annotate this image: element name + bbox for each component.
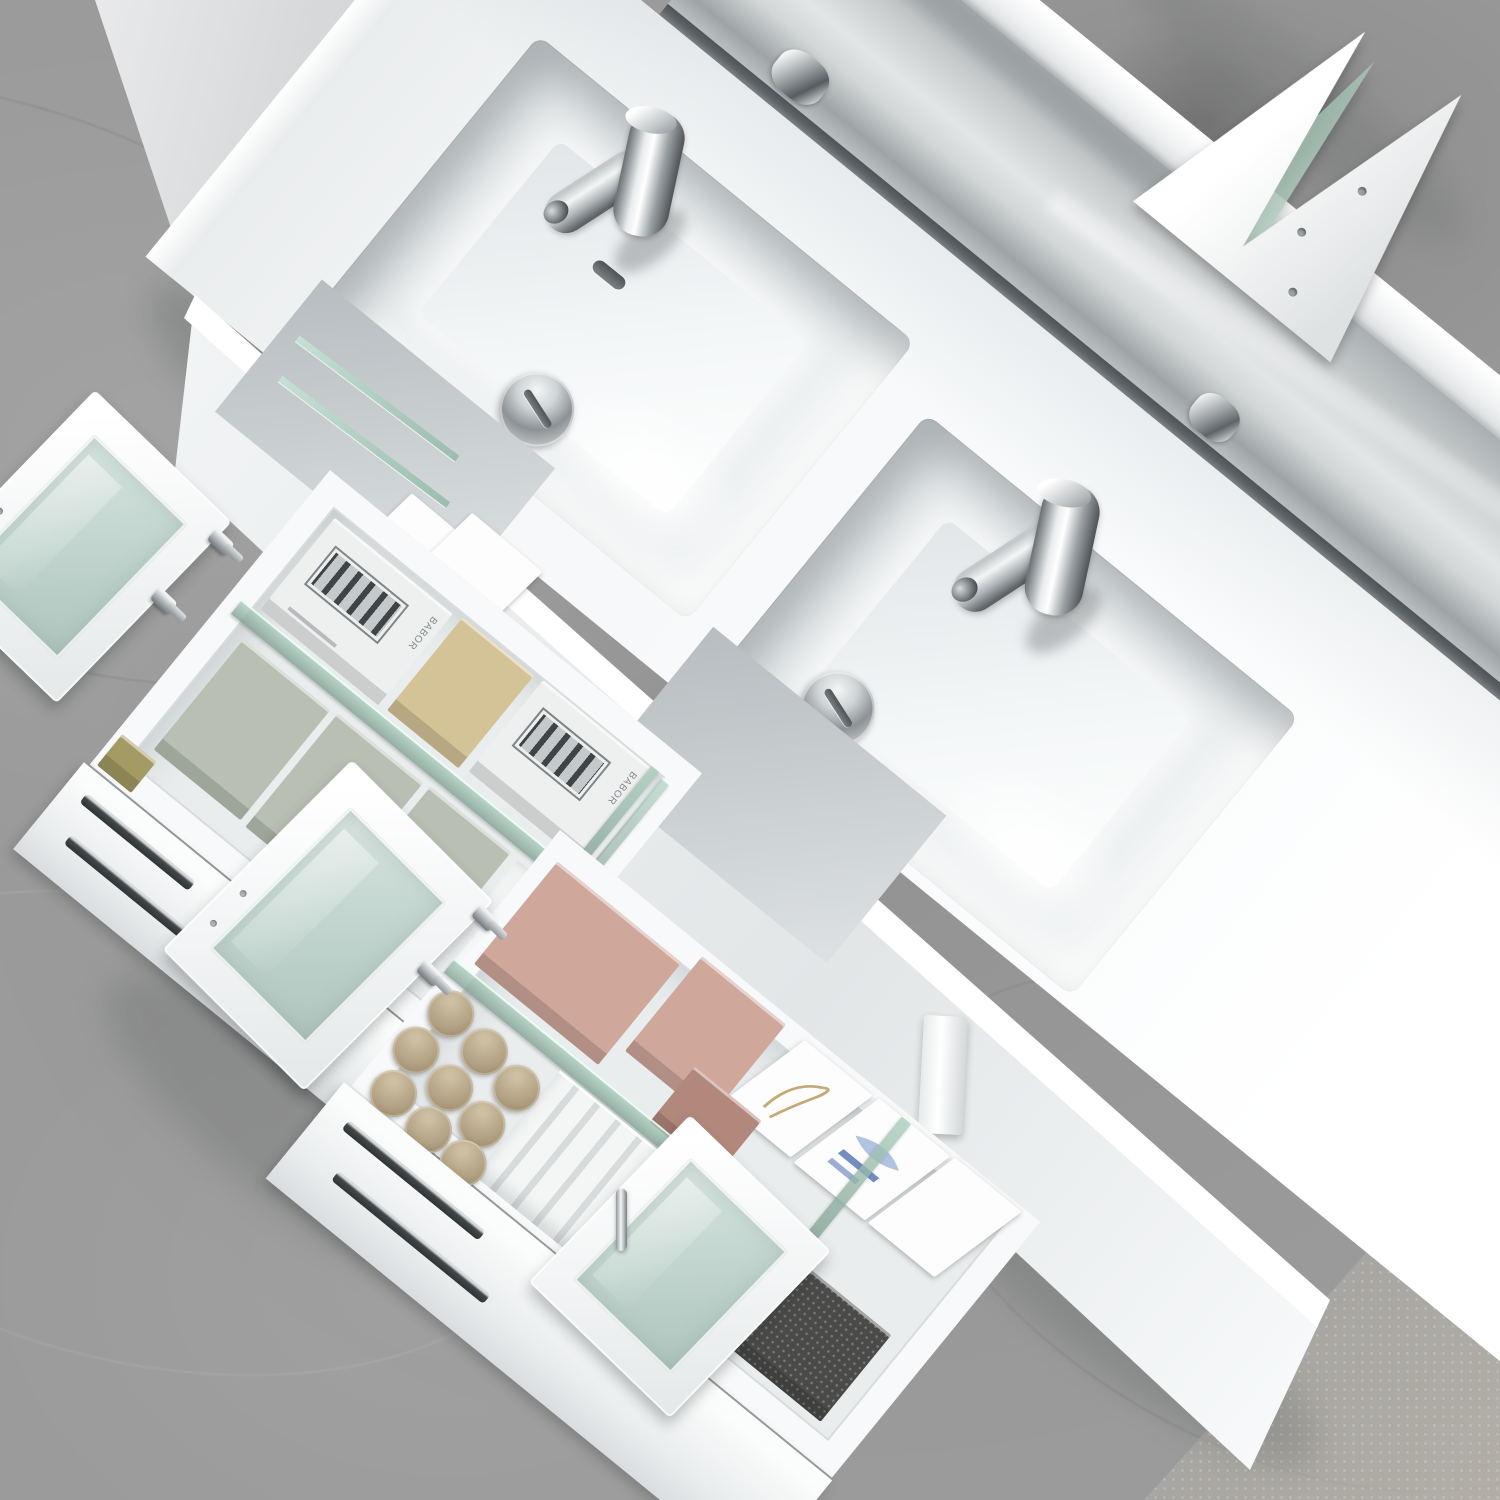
screw-hole	[1355, 185, 1368, 198]
drain-slot	[522, 388, 553, 429]
shelf-pin-hole	[208, 918, 218, 928]
cabinet-leg	[918, 1015, 968, 1135]
shelf-pin-hole	[238, 889, 248, 899]
faucet-right	[953, 477, 1163, 677]
scene-vanity-photo: BABOR BABOR	[0, 0, 1500, 1500]
door-handle	[616, 1189, 627, 1251]
screw-hole	[1286, 286, 1299, 299]
shelf-pin-hole	[0, 506, 4, 516]
faucet-left	[545, 105, 745, 295]
screw-hole	[1295, 226, 1308, 239]
